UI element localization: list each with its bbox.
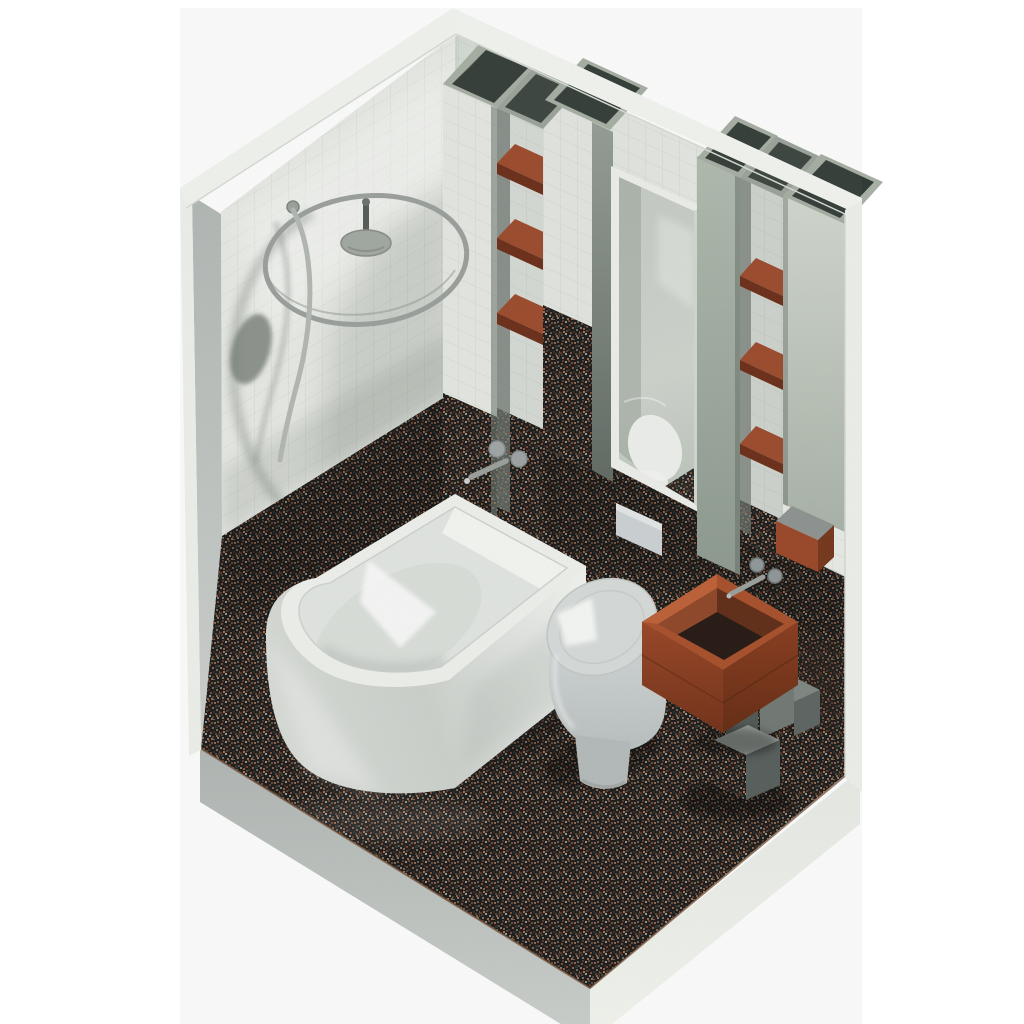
bathroom-3d-render — [0, 0, 1024, 1024]
render-grain — [180, 8, 862, 1024]
bathroom-render-page — [0, 0, 1024, 1024]
grain-layer — [180, 8, 862, 1024]
